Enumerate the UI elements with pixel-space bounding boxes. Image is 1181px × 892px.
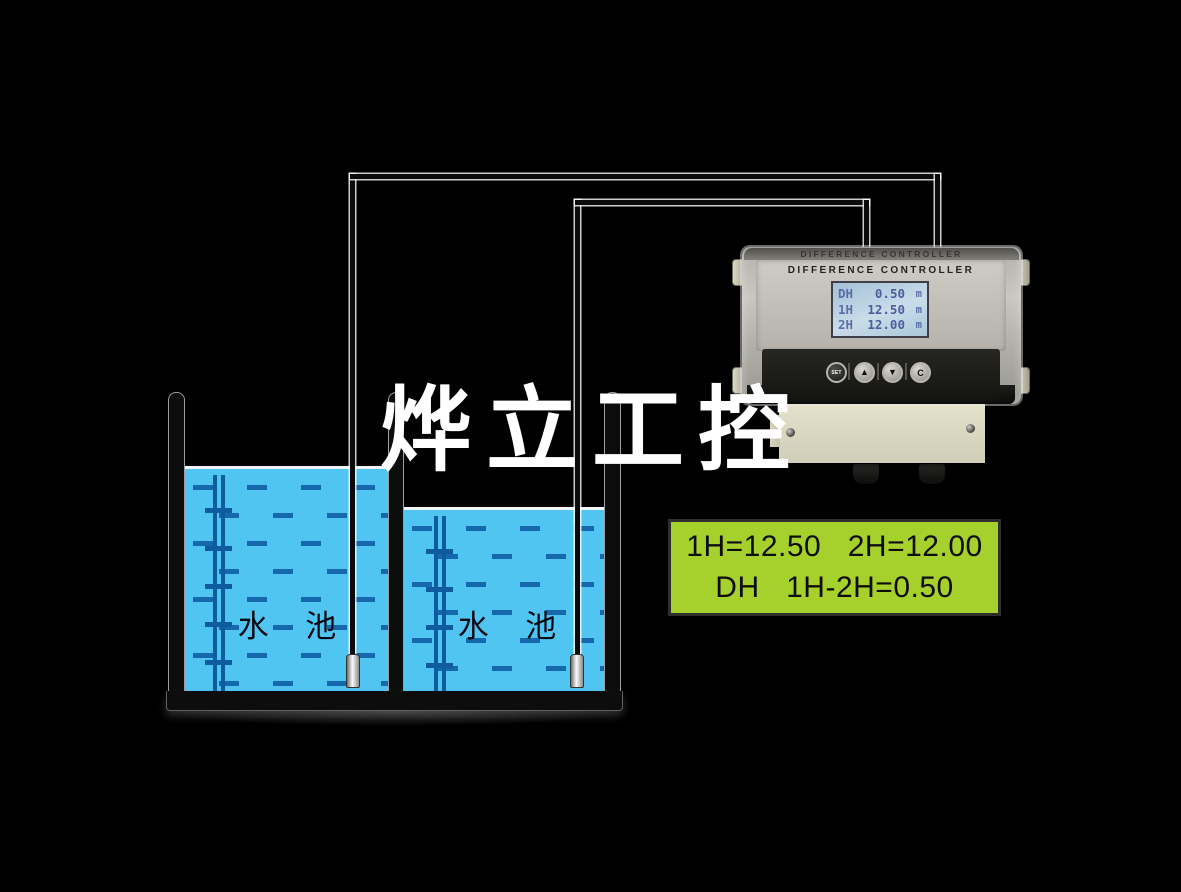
controller-embossed-title: DIFFERENCE CONTROLLER — [801, 249, 963, 259]
sensor2-wire-horizontal — [575, 200, 869, 205]
sensor1-wire-horizontal — [350, 174, 940, 179]
cable-gland — [919, 461, 945, 484]
lcd-row-value: 12.00 — [857, 318, 912, 332]
diagram-canvas: 水 池 水 池 DIFFERENCE CONTROLLER DIFFERENCE… — [0, 0, 1181, 892]
tank-bottom-wall — [166, 691, 623, 711]
sensor1-wire-drop — [935, 174, 940, 254]
lcd-row-unit: m — [912, 303, 922, 317]
cable-gland — [853, 461, 879, 484]
lcd-row-dh: DH 0.50 m — [838, 287, 922, 301]
brand-watermark: 烨立工控 — [380, 383, 804, 480]
lcd-row-unit: m — [912, 318, 922, 332]
button-separator — [905, 363, 907, 380]
lcd-row-unit: m — [912, 287, 922, 301]
down-button[interactable]: ▼ — [882, 362, 903, 383]
controller-top-edge: DIFFERENCE CONTROLLER — [744, 248, 1019, 260]
mounting-screw — [966, 424, 975, 433]
tank1-left-wall — [168, 392, 185, 693]
clear-button[interactable]: C — [910, 362, 931, 383]
button-separator — [848, 363, 850, 380]
lcd-row-label: 1H — [838, 303, 857, 317]
level-probe-2 — [570, 654, 584, 688]
tank1-level-gauge — [205, 475, 232, 692]
readout-panel: 1H=12.50 2H=12.00 DH 1H-2H=0.50 — [668, 519, 1001, 616]
lcd-row-2h: 2H 12.00 m — [838, 318, 922, 332]
lcd-row-label: 2H — [838, 318, 857, 332]
controller-title: DIFFERENCE CONTROLLER — [756, 265, 1006, 276]
lcd-row-value: 0.50 — [857, 287, 912, 301]
sensor1-cable-vertical — [350, 174, 355, 656]
tank1-label: 水 池 — [217, 601, 367, 646]
sensor2-wire-drop — [864, 200, 869, 254]
level-probe-1 — [346, 654, 360, 688]
lcd-row-value: 12.50 — [857, 303, 912, 317]
lcd-row-label: DH — [838, 287, 857, 301]
set-button[interactable]: SET — [826, 362, 847, 383]
readout-line-difference: DH 1H-2H=0.50 — [715, 571, 953, 605]
tank2-label: 水 池 — [437, 601, 587, 646]
button-separator — [877, 363, 879, 380]
readout-line-levels: 1H=12.50 2H=12.00 — [686, 530, 982, 564]
up-button[interactable]: ▲ — [854, 362, 875, 383]
lcd-row-1h: 1H 12.50 m — [838, 303, 922, 317]
lcd-display: DH 0.50 m 1H 12.50 m 2H 12.00 m — [831, 281, 929, 338]
controller-mounting-plate — [779, 404, 985, 463]
